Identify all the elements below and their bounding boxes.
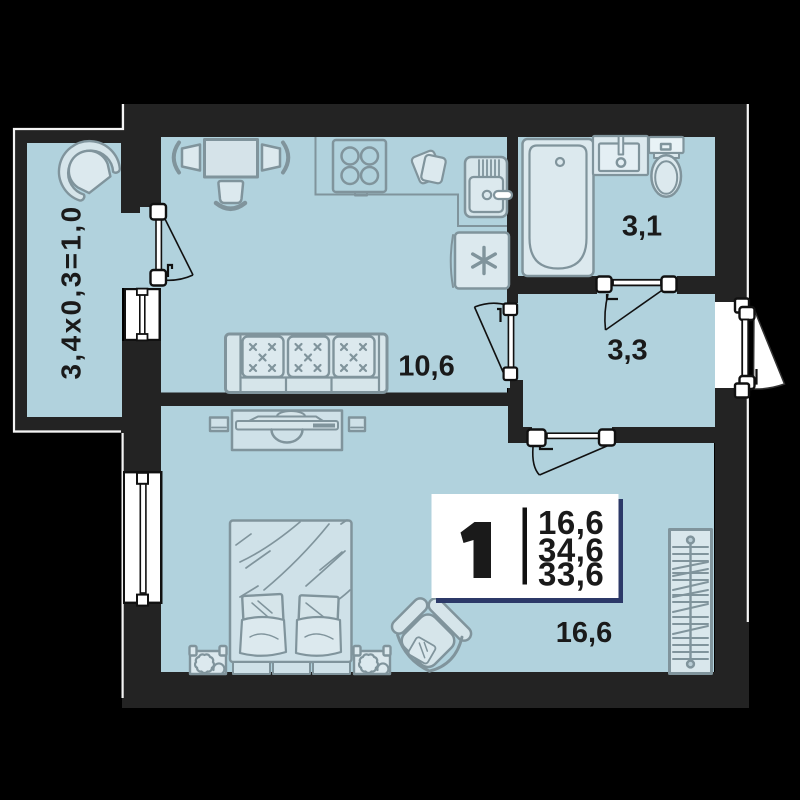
- svg-text:10,6: 10,6: [398, 351, 454, 383]
- svg-text:3,1: 3,1: [622, 211, 662, 243]
- svg-text:3,4x0,3=1,0: 3,4x0,3=1,0: [56, 204, 87, 379]
- svg-text:33,6: 33,6: [538, 556, 604, 593]
- svg-text:16,6: 16,6: [556, 617, 612, 649]
- svg-text:3,3: 3,3: [607, 335, 647, 367]
